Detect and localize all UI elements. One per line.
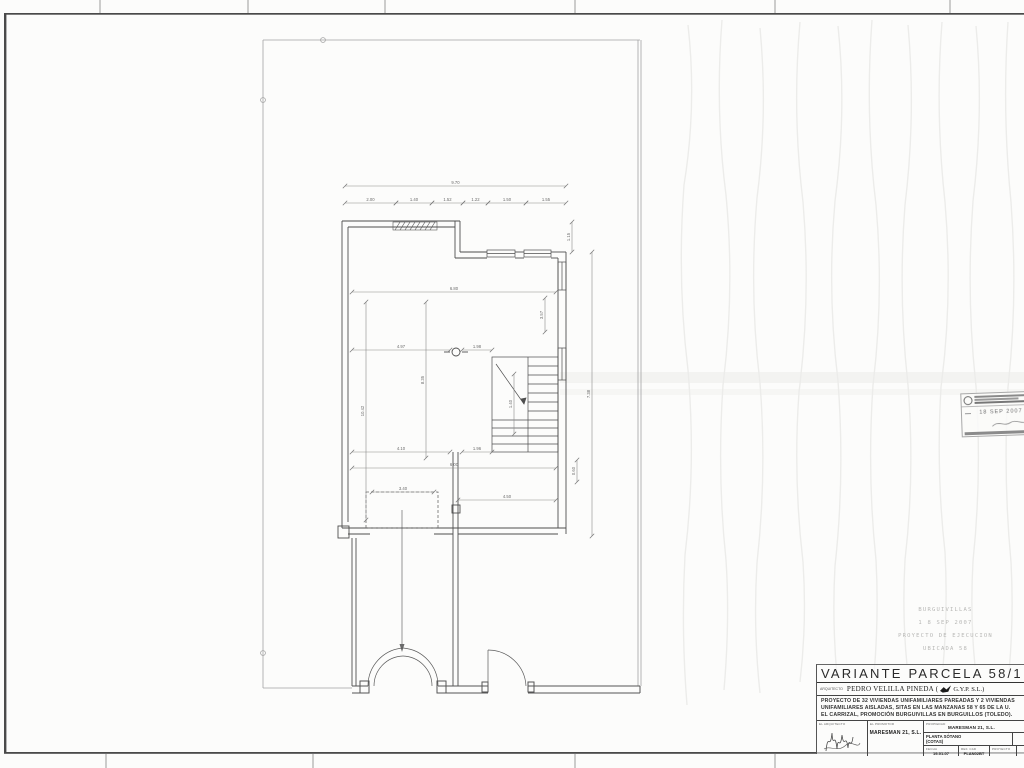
description-line: UNIFAMILIARES AISLADAS, SITAS EN LAS MAN… xyxy=(821,705,1024,712)
dimension-label: 1.96 xyxy=(473,446,482,451)
dimension-label: 1.98 xyxy=(473,344,482,349)
staircase xyxy=(492,357,558,452)
floor-plan-drawing: 9.702.001.401.521.221.501.551.156.803.57… xyxy=(0,0,1024,768)
sheet-title: VARIANTE PARCELA 58/1 xyxy=(817,665,1024,683)
refcad-label: REF. CAD xyxy=(961,747,976,751)
refcad-cell: REF. CAD PLAN02BT xyxy=(959,746,990,756)
refcad-value: PLAN02BT xyxy=(959,751,989,756)
architect-firm: G.Y.P. S.L.) xyxy=(953,686,984,693)
stamp-signature xyxy=(990,418,1024,428)
dimension-label: 3.40 xyxy=(399,486,408,491)
fecha-cell: FECHA 19-01-07 xyxy=(924,746,959,756)
architect-signature-cell: EL ARQUITECTO xyxy=(817,721,868,756)
dimension-label: 0.60 xyxy=(571,466,576,475)
proyecto-cell: PROYECTO xyxy=(990,746,1017,756)
door-jamb xyxy=(528,682,534,692)
promotor-value: MARESMAN 21, S.L. xyxy=(868,730,923,736)
date-received-stamp: BURGUIVILLAS 1 8 SEP 2007 PROYECTO DE EJ… xyxy=(883,604,1008,656)
stamp-line: 1 8 SEP 2007 xyxy=(883,617,1008,630)
dimension-label: 1.15 xyxy=(566,232,571,241)
dimension-label: 4.10 xyxy=(397,446,406,451)
door-jamb xyxy=(482,682,488,692)
dimension-label: 1.55 xyxy=(542,197,551,202)
dimension-label: 8.35 xyxy=(420,375,425,384)
stamp-footer-band xyxy=(965,429,1024,435)
title-block: VARIANTE PARCELA 58/1 ARQUITECTO PEDRO V… xyxy=(816,664,1024,754)
fecha-value: 19-01-07 xyxy=(924,751,958,756)
fecha-label: FECHA xyxy=(926,747,937,751)
dimension-label: 10.42 xyxy=(360,405,365,416)
plan-info-cell: PROPIEDAD MARESMAN 21, S.L. PLANTA SÓTAN… xyxy=(924,721,1024,756)
dimension-label: 1.40 xyxy=(410,197,419,202)
stamp-date: 18 SEP 2007 xyxy=(962,408,1024,417)
project-description: PROYECTO DE 32 VIVIENDAS UNIFAMILIARES P… xyxy=(817,696,1024,721)
promotor-cell: EL PROMOTOR MARESMAN 21, S.L. xyxy=(868,721,924,756)
el-promotor-label: EL PROMOTOR xyxy=(870,722,894,726)
plano-row: PLANTA SÓTANO (COTAS) xyxy=(924,733,1024,746)
stair-direction-line xyxy=(496,364,524,404)
door-jamb xyxy=(360,681,369,693)
visado-stamp: 18 SEP 2007 xyxy=(960,391,1024,438)
dimension-label: 1.22 xyxy=(471,197,480,202)
dimension-label: 9.70 xyxy=(451,180,460,185)
dimension-annotations: 9.702.001.401.521.221.501.551.156.803.57… xyxy=(343,180,594,538)
site-boundary xyxy=(261,38,641,688)
fold-marks xyxy=(100,0,950,768)
proyecto-label: PROYECTO xyxy=(992,747,1010,751)
window xyxy=(558,262,566,380)
dimension-label: 1.50 xyxy=(503,197,512,202)
dimension-label: 4.50 xyxy=(503,494,512,499)
architect-row: ARQUITECTO PEDRO VELILLA PINEDA ( G.Y.P.… xyxy=(817,683,1024,696)
scan-artifacts xyxy=(560,20,1024,705)
pedestrian-door xyxy=(488,650,526,686)
door-jamb xyxy=(437,681,446,693)
propiedad-row: PROPIEDAD MARESMAN 21, S.L. xyxy=(924,721,1024,733)
dimension-label: 4.97 xyxy=(397,344,406,349)
dimension-label: 2.00 xyxy=(366,197,375,202)
garage-double-door xyxy=(368,648,438,686)
stamp-line: BURGUIVILLAS xyxy=(883,604,1008,617)
propiedad-value: MARESMAN 21, S.L. xyxy=(948,725,995,730)
description-line: EL CARRIZAL, PROMOCIÓN BURGUIVILLAS EN B… xyxy=(821,712,1024,719)
college-seal-icon xyxy=(963,396,972,405)
dimension-label: 3.57 xyxy=(539,310,544,319)
dimension-label: 7.38 xyxy=(586,389,591,398)
clipped-cell xyxy=(1013,733,1024,745)
architect-name: PEDRO VELILLA PINEDA ( xyxy=(847,685,938,693)
stamp-line: UBICADA 58 xyxy=(883,643,1008,656)
dimension-label: 6.80 xyxy=(450,286,459,291)
stamp-header-band xyxy=(961,392,1024,408)
titleblock-grid: EL ARQUITECTO EL PROMOTOR MARESMAN 21, S… xyxy=(817,721,1024,756)
dimension-label: 6.00 xyxy=(450,462,459,467)
window-hatch xyxy=(393,222,437,230)
scanned-plan-sheet: { "sheet": { "title": "VARIANTE PARCELA … xyxy=(0,0,1024,768)
stamp-line: PROYECTO DE EJECUCION xyxy=(883,630,1008,643)
architect-signature xyxy=(818,725,866,755)
dimension-label: 1.52 xyxy=(443,197,452,202)
plano-title-line2: (COTAS) xyxy=(926,739,1012,744)
plano-title-cell: PLANTA SÓTANO (COTAS) xyxy=(924,733,1013,745)
window xyxy=(487,250,551,257)
propiedad-label: PROPIEDAD xyxy=(926,722,945,726)
description-line: PROYECTO DE 32 VIVIENDAS UNIFAMILIARES P… xyxy=(821,698,1024,705)
clipped-cell xyxy=(1017,746,1024,756)
garage-overhead-door xyxy=(366,492,438,652)
meta-row: FECHA 19-01-07 REF. CAD PLAN02BT PROYECT… xyxy=(924,746,1024,756)
architect-label: ARQUITECTO xyxy=(820,687,843,691)
dimension-label: 1.40 xyxy=(508,399,513,408)
gyp-logo-icon xyxy=(940,683,951,696)
street-wall xyxy=(352,681,640,693)
